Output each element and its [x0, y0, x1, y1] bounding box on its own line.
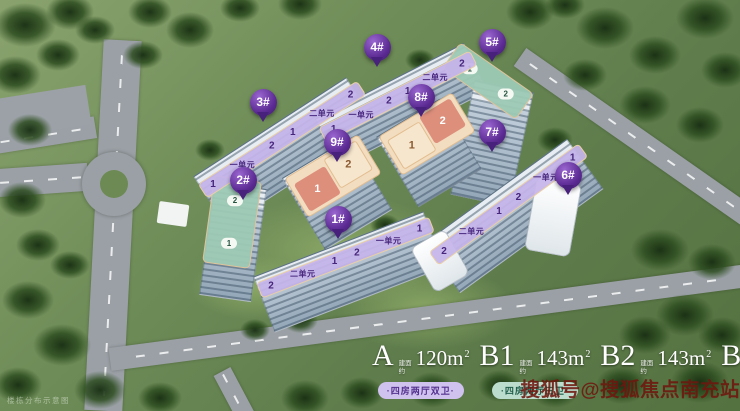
floorplan-tag: ·四房两厅双卫· [378, 382, 464, 399]
building-marker-4: 4# [364, 34, 391, 61]
tree [123, 41, 163, 70]
tree [138, 382, 182, 411]
unit-chip-1: 1 [221, 238, 237, 249]
tree [563, 59, 607, 91]
area-value: 120m2 [416, 348, 470, 369]
building-marker-6: 6# [555, 162, 582, 189]
area-superscript: 2 [706, 349, 711, 360]
unit-number: 1 [417, 223, 423, 234]
road [214, 367, 266, 411]
building-marker-2: 2# [230, 167, 257, 194]
floorplan-code: B1 [480, 341, 515, 371]
tree [36, 39, 80, 71]
area-value: 143m2 [657, 348, 711, 369]
tree [619, 86, 672, 124]
unit-number: 1 [210, 179, 216, 190]
unit-name: 二单元 [458, 226, 484, 237]
tree [281, 380, 329, 411]
building-marker-3: 3# [250, 89, 277, 116]
area-superscript: 2 [465, 349, 470, 360]
tree [676, 0, 733, 39]
small-building [157, 201, 190, 227]
tree [576, 7, 633, 49]
unit-number: 2 [386, 96, 392, 107]
watermark: 搜狐号@搜狐焦点南充站 [520, 373, 740, 402]
unit-name: 二单元 [422, 72, 448, 83]
tree [128, 0, 172, 28]
tree [50, 251, 90, 280]
area-prefix: 建面约 [399, 360, 414, 375]
tree [0, 182, 46, 217]
unit-number: 2 [515, 192, 521, 203]
tree [631, 229, 688, 271]
site-plan-aerial-view: 1一单元21二单元21一单元21二单元22二单元12一单元12二单元12一单元1… [0, 0, 740, 411]
tree [8, 114, 52, 146]
tree [629, 36, 682, 74]
building-marker-1: 1# [325, 206, 352, 233]
unit-number: 1 [496, 206, 502, 217]
unit-number: 2 [269, 141, 275, 152]
tree [166, 12, 214, 47]
building-marker-7: 7# [479, 119, 506, 146]
floorplan-code: B3 [721, 341, 740, 371]
floorplan-code: A [372, 341, 394, 371]
tree [75, 16, 115, 45]
unit-name: 二单元 [309, 108, 335, 119]
area-value: 143m2 [537, 348, 591, 369]
unit-name: 一单元 [532, 172, 558, 183]
unit-number: 2 [268, 281, 274, 292]
tree [278, 0, 322, 20]
unit-name: 一单元 [348, 110, 374, 121]
building-marker-9: 9# [324, 129, 351, 156]
tree [2, 281, 55, 319]
unit-name: 一单元 [375, 236, 401, 247]
unit-name: 二单元 [289, 268, 315, 279]
unit-number: 2 [441, 246, 447, 257]
tree [33, 324, 90, 366]
unit-number: 1 [290, 127, 296, 138]
unit-number: 2 [353, 248, 359, 259]
caption: 楼栋分布示意图 [7, 395, 70, 406]
roundabout [82, 152, 146, 216]
unit-number: 2 [460, 58, 466, 69]
tree [676, 107, 724, 142]
tree [220, 0, 260, 22]
tree [688, 244, 736, 279]
floorplan-code: B2 [600, 341, 635, 371]
tree [701, 52, 740, 87]
building-marker-8: 8# [408, 84, 435, 111]
area-superscript: 2 [585, 349, 590, 360]
tree [0, 56, 41, 94]
legend-item-A: A建面约120m2·四房两厅双卫· [372, 341, 470, 399]
building-marker-5: 5# [479, 29, 506, 56]
unit-chip-2: 2 [498, 88, 514, 99]
unit-number: 2 [348, 89, 354, 100]
unit-number: 1 [331, 256, 337, 267]
